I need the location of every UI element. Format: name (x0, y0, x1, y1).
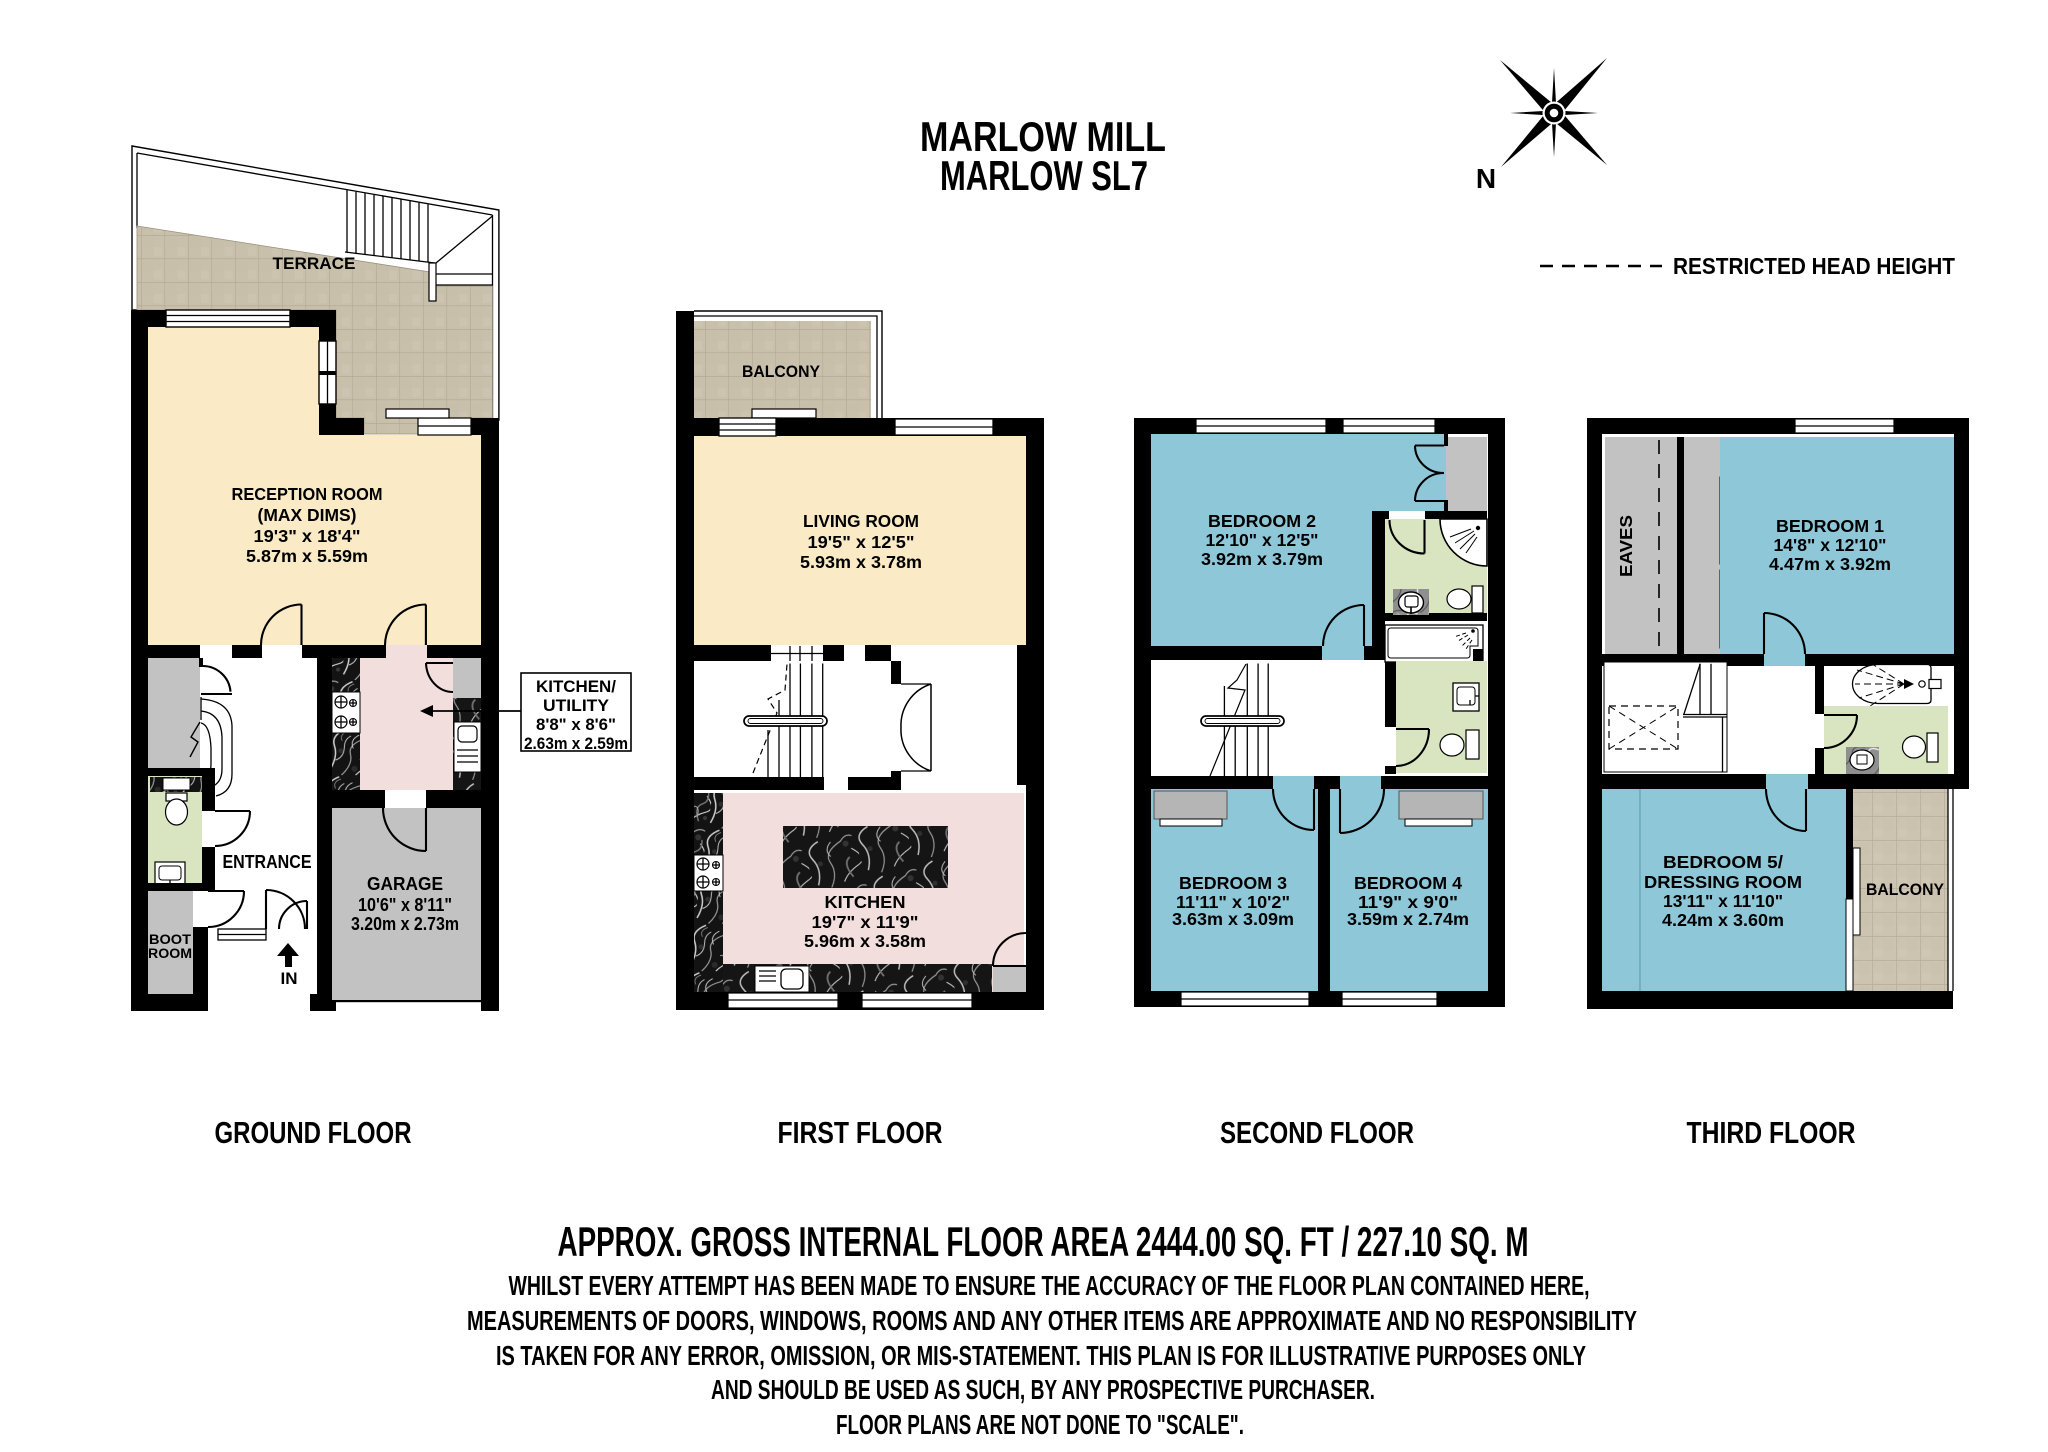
svg-text:GARAGE: GARAGE (367, 873, 443, 894)
svg-text:3.63m x 3.09m: 3.63m x 3.09m (1172, 909, 1294, 929)
svg-text:(MAX DIMS): (MAX DIMS) (258, 505, 357, 525)
svg-text:3.92m x 3.79m: 3.92m x 3.79m (1201, 549, 1323, 569)
svg-text:WHILST EVERY ATTEMPT HAS BEEN: WHILST EVERY ATTEMPT HAS BEEN MADE TO EN… (509, 1270, 1590, 1301)
svg-text:BOOT: BOOT (149, 932, 192, 947)
svg-text:BEDROOM 3: BEDROOM 3 (1179, 873, 1287, 893)
svg-text:19'3" x 18'4": 19'3" x 18'4" (254, 526, 361, 546)
svg-text:5.96m x 3.58m: 5.96m x 3.58m (804, 931, 926, 951)
svg-text:KITCHEN: KITCHEN (825, 892, 906, 912)
svg-text:RESTRICTED HEAD HEIGHT: RESTRICTED HEAD HEIGHT (1673, 253, 1955, 279)
svg-text:5.87m x 5.59m: 5.87m x 5.59m (246, 546, 368, 566)
svg-text:SECOND FLOOR: SECOND FLOOR (1220, 1115, 1414, 1150)
svg-text:LIVING ROOM: LIVING ROOM (803, 511, 919, 531)
svg-text:13'11" x 11'10": 13'11" x 11'10" (1663, 891, 1783, 911)
svg-text:APPROX. GROSS INTERNAL FLOOR A: APPROX. GROSS INTERNAL FLOOR AREA 2444.0… (558, 1218, 1529, 1265)
svg-text:3.20m x 2.73m: 3.20m x 2.73m (351, 913, 459, 934)
svg-text:BEDROOM 2: BEDROOM 2 (1208, 511, 1316, 531)
svg-text:19'5" x 12'5": 19'5" x 12'5" (808, 532, 915, 552)
svg-text:RECEPTION ROOM: RECEPTION ROOM (232, 484, 383, 504)
svg-text:5.93m x 3.78m: 5.93m x 3.78m (800, 552, 922, 572)
svg-text:ENTRANCE: ENTRANCE (223, 851, 312, 872)
svg-text:MEASUREMENTS OF DOORS, WINDOWS: MEASUREMENTS OF DOORS, WINDOWS, ROOMS AN… (467, 1305, 1637, 1336)
svg-text:BEDROOM 4: BEDROOM 4 (1354, 873, 1462, 893)
svg-text:FIRST FLOOR: FIRST FLOOR (778, 1115, 943, 1150)
svg-text:14'8" x 12'10": 14'8" x 12'10" (1774, 535, 1887, 555)
svg-text:4.47m x 3.92m: 4.47m x 3.92m (1769, 554, 1891, 574)
svg-text:BALCONY: BALCONY (1866, 881, 1944, 899)
svg-text:BEDROOM 5/: BEDROOM 5/ (1663, 852, 1783, 872)
svg-text:UTILITY: UTILITY (543, 696, 610, 715)
svg-text:10'6" x 8'11": 10'6" x 8'11" (358, 894, 452, 915)
svg-text:4.24m x 3.60m: 4.24m x 3.60m (1662, 910, 1784, 930)
svg-text:BEDROOM 1: BEDROOM 1 (1776, 516, 1884, 536)
svg-text:THIRD FLOOR: THIRD FLOOR (1687, 1115, 1856, 1150)
svg-text:GROUND FLOOR: GROUND FLOOR (215, 1115, 412, 1150)
svg-text:BALCONY: BALCONY (742, 363, 820, 381)
svg-text:8'8" x 8'6": 8'8" x 8'6" (536, 715, 616, 734)
svg-text:KITCHEN/: KITCHEN/ (536, 677, 616, 696)
svg-text:AND SHOULD BE USED AS SUCH, BY: AND SHOULD BE USED AS SUCH, BY ANY PROSP… (711, 1374, 1375, 1405)
svg-text:TERRACE: TERRACE (273, 255, 356, 273)
svg-text:ROOM: ROOM (148, 946, 192, 961)
svg-text:12'10" x 12'5": 12'10" x 12'5" (1206, 530, 1319, 550)
svg-text:MARLOW SL7: MARLOW SL7 (940, 152, 1148, 199)
svg-text:FLOOR PLANS ARE NOT DONE TO "S: FLOOR PLANS ARE NOT DONE TO "SCALE". (836, 1409, 1244, 1440)
svg-text:IS TAKEN FOR ANY ERROR, OMISSI: IS TAKEN FOR ANY ERROR, OMISSION, OR MIS… (496, 1340, 1586, 1371)
svg-text:3.59m x 2.74m: 3.59m x 2.74m (1347, 909, 1469, 929)
svg-text:EAVES: EAVES (1616, 515, 1636, 577)
svg-text:2.63m x 2.59m: 2.63m x 2.59m (524, 734, 628, 753)
svg-text:N: N (1476, 163, 1496, 194)
svg-text:DRESSING ROOM: DRESSING ROOM (1644, 872, 1802, 892)
svg-text:IN: IN (281, 969, 298, 988)
svg-text:19'7" x 11'9": 19'7" x 11'9" (812, 912, 919, 932)
